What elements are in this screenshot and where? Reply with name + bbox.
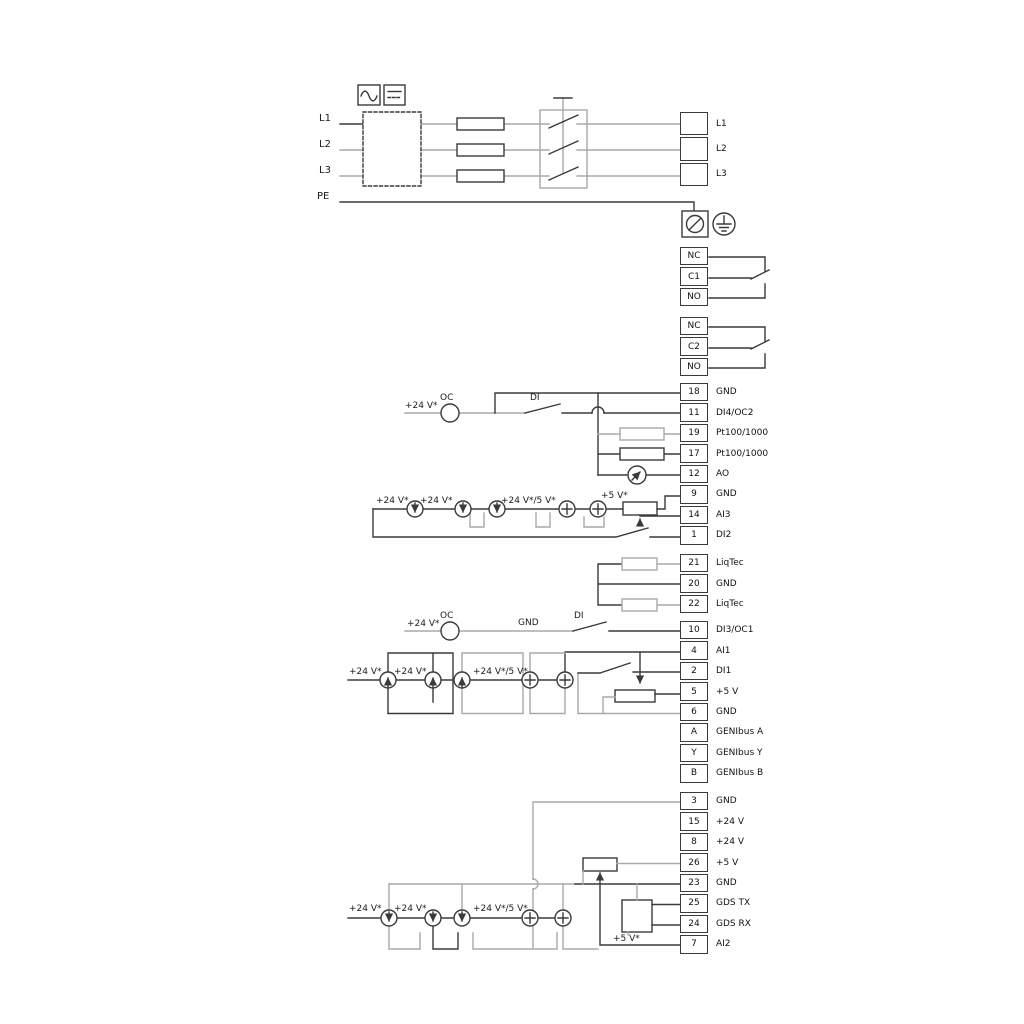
liqtec-sensor-1 — [622, 558, 657, 570]
wire-label--24-v-: +24 V* — [376, 497, 409, 506]
terminal-7: 7 — [680, 935, 708, 953]
terminal-26: 26 — [680, 853, 708, 871]
dc-icon — [384, 85, 405, 105]
terminal-label-Pt100/1000: Pt100/1000 — [716, 424, 768, 442]
wire-label--24-v-: +24 V* — [349, 668, 382, 677]
terminal-4: 4 — [680, 641, 708, 659]
potentiometer-ai3 — [623, 502, 657, 515]
terminal-label-GND: GND — [716, 874, 737, 892]
terminal-label-GND: GND — [716, 703, 737, 721]
io1-wiring — [373, 393, 680, 537]
wire-label-l2: L2 — [319, 140, 331, 150]
schematic-lines — [0, 0, 1024, 1024]
terminal-L1 — [680, 112, 708, 135]
wire-label--5-v-: +5 V* — [601, 492, 628, 501]
terminal-NC: NC — [680, 317, 708, 335]
terminal-C2: C2 — [680, 337, 708, 355]
potentiometer-ai2 — [583, 858, 617, 871]
terminal-8: 8 — [680, 833, 708, 851]
terminal-11: 11 — [680, 403, 708, 421]
terminal-18: 18 — [680, 383, 708, 401]
terminal-label-LiqTec: LiqTec — [716, 595, 744, 613]
terminal-NC: NC — [680, 247, 708, 265]
terminal-label-LiqTec: LiqTec — [716, 554, 744, 572]
potentiometer-ai1 — [615, 690, 655, 702]
terminal-22: 22 — [680, 595, 708, 613]
oc-circle — [441, 404, 459, 422]
terminal-5: 5 — [680, 682, 708, 700]
power-input-section — [340, 85, 735, 237]
wire-label--24-v-: +24 V* — [394, 668, 427, 677]
terminal-C1: C1 — [680, 267, 708, 285]
terminal-label-+24-V: +24 V — [716, 833, 744, 851]
terminal-label-GND: GND — [716, 574, 737, 592]
terminal-label-+5-V: +5 V — [716, 682, 738, 700]
pt100-sensor-2 — [620, 448, 664, 460]
terminal-10: 10 — [680, 621, 708, 639]
liqtec-wiring — [598, 558, 680, 611]
terminal-L2 — [680, 137, 708, 160]
wire-label--24-v-: +24 V* — [420, 497, 453, 506]
terminal-label-AI2: AI2 — [716, 935, 731, 953]
terminal-15: 15 — [680, 812, 708, 830]
terminal-NO: NO — [680, 358, 708, 376]
terminal-20: 20 — [680, 574, 708, 592]
disconnect-switch — [540, 98, 587, 188]
terminal-label-GND: GND — [716, 792, 737, 810]
wire-label-pe: PE — [317, 192, 329, 202]
wire-label--24-v-5-v-: +24 V*/5 V* — [501, 497, 556, 506]
wire-label-l3: L3 — [319, 166, 331, 176]
terminal-19: 19 — [680, 424, 708, 442]
terminal-label-+24-V: +24 V — [716, 812, 744, 830]
relay2-changeover-contact — [709, 327, 769, 368]
ground-terminal-icon — [682, 211, 708, 237]
wire-label--24-v-: +24 V* — [405, 402, 438, 411]
terminal-21: 21 — [680, 554, 708, 572]
ac-sine-icon — [358, 85, 380, 105]
terminal-17: 17 — [680, 444, 708, 462]
terminal-label-GENIbus-B: GENIbus B — [716, 764, 763, 782]
terminal-label-GDS-TX: GDS TX — [716, 894, 750, 912]
terminal-L3 — [680, 163, 708, 186]
terminal-25: 25 — [680, 894, 708, 912]
terminal-12: 12 — [680, 465, 708, 483]
fuse-l2 — [457, 144, 504, 156]
terminal-label-GND: GND — [716, 485, 737, 503]
wire-label-gnd: GND — [518, 619, 539, 628]
terminal-label-GENIbus-A: GENIbus A — [716, 723, 763, 741]
wire-label--24-v-5-v-: +24 V*/5 V* — [473, 668, 528, 677]
terminal-A: A — [680, 723, 708, 741]
terminal-23: 23 — [680, 874, 708, 892]
terminal-label-AO: AO — [716, 465, 729, 483]
terminal-NO: NO — [680, 288, 708, 306]
terminal-label-GDS-RX: GDS RX — [716, 915, 751, 933]
wire-label-di: DI — [574, 612, 584, 621]
wire-label--24-v-: +24 V* — [394, 905, 427, 914]
terminal-label-L2: L2 — [716, 137, 727, 160]
terminal-label-L1: L1 — [716, 112, 727, 135]
fuse-l1 — [457, 118, 504, 130]
terminal-label-L3: L3 — [716, 163, 727, 186]
wire-label--24-v-5-v-: +24 V*/5 V* — [473, 905, 528, 914]
wire-label--24-v-: +24 V* — [407, 620, 440, 629]
terminal-14: 14 — [680, 506, 708, 524]
fuse-l3 — [457, 170, 504, 182]
wire-label--24-v-: +24 V* — [349, 905, 382, 914]
wire-label-l1: L1 — [319, 114, 331, 124]
terminal-label-Pt100/1000: Pt100/1000 — [716, 444, 768, 462]
io3-wiring — [348, 802, 680, 949]
terminal-label-GND: GND — [716, 383, 737, 401]
wire-label-oc: OC — [440, 394, 453, 403]
wire-label-di: DI — [530, 394, 540, 403]
terminal-label-+5-V: +5 V — [716, 853, 738, 871]
terminal-Y: Y — [680, 744, 708, 762]
terminal-label-AI1: AI1 — [716, 641, 731, 659]
terminal-2: 2 — [680, 662, 708, 680]
emc-filter-box — [363, 112, 421, 186]
terminal-label-GENIbus-Y: GENIbus Y — [716, 744, 763, 762]
wire-label--5-v-: +5 V* — [613, 935, 640, 944]
terminal-label-DI2: DI2 — [716, 526, 731, 544]
terminal-3: 3 — [680, 792, 708, 810]
terminal-label-DI4/OC2: DI4/OC2 — [716, 403, 753, 421]
terminal-1: 1 — [680, 526, 708, 544]
pe-earth-icon — [713, 213, 735, 235]
terminal-6: 6 — [680, 703, 708, 721]
terminal-label-AI3: AI3 — [716, 506, 731, 524]
relay1-changeover-contact — [709, 257, 769, 298]
terminal-label-DI3/OC1: DI3/OC1 — [716, 621, 753, 639]
terminal-9: 9 — [680, 485, 708, 503]
liqtec-sensor-2 — [622, 599, 657, 611]
wiring-diagram: L1L2L3NCC1NONCC2NO18GND11DI4/OC219Pt100/… — [0, 0, 1024, 1024]
terminal-label-DI1: DI1 — [716, 662, 731, 680]
terminal-B: B — [680, 764, 708, 782]
wire-label-oc: OC — [440, 612, 453, 621]
oc-circle — [441, 622, 459, 640]
pt100-sensor-1 — [620, 428, 664, 440]
gds-sensor-box — [622, 900, 652, 932]
terminal-24: 24 — [680, 915, 708, 933]
